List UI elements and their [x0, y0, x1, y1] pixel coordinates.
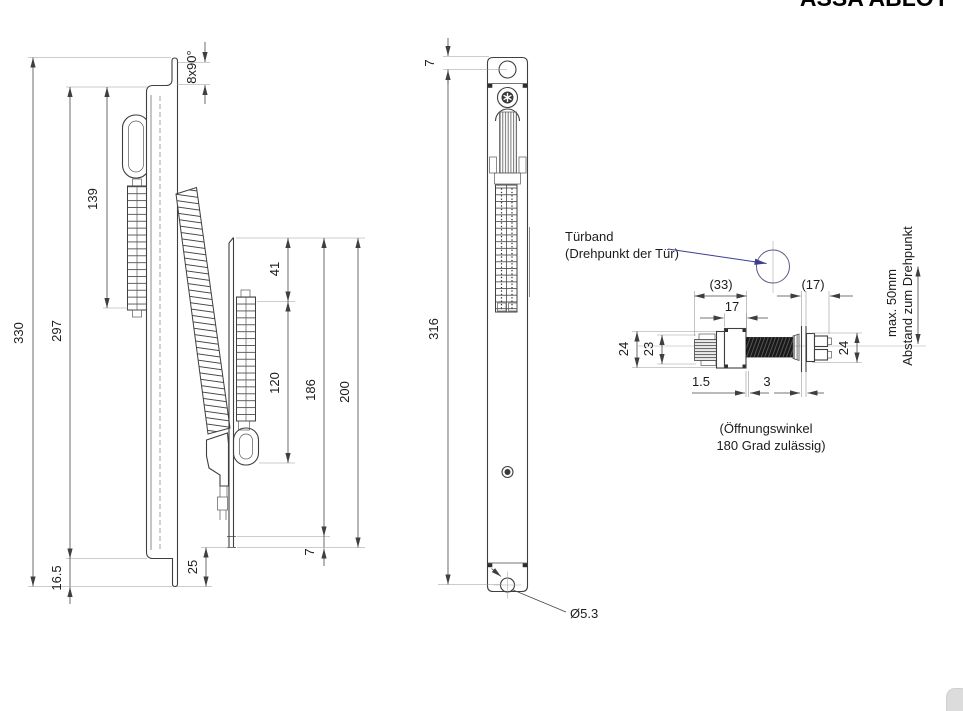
dim-socket-height: 24	[836, 341, 851, 355]
dim-flange-step: 1.5	[692, 374, 710, 389]
brand-logo-text: ASSA ABLOY	[800, 0, 949, 10]
pivot-distance-note-line1: max. 50mm	[884, 269, 899, 337]
terminal-block-door	[237, 290, 256, 430]
dim-door-inner: 186	[303, 379, 318, 401]
dim-socket-total: (17)	[801, 277, 824, 292]
dim-door-total: 200	[337, 381, 352, 403]
dim-plate-height: 297	[49, 320, 64, 342]
wall-plate-profile	[147, 58, 178, 587]
dim-plug-total: (33)	[709, 277, 732, 292]
door-hook	[234, 428, 259, 465]
corrugated-cable	[176, 188, 230, 435]
technical-drawing-page: ASSA ABLOY	[0, 0, 963, 711]
dim-hole-diameter: Ø5.3	[570, 606, 598, 621]
dim-overall-height: 330	[11, 322, 26, 344]
hinge-label-line1: Türband	[565, 229, 613, 244]
dim-plug-height-outer: 24	[616, 342, 631, 356]
cable-gland-housing	[207, 433, 229, 520]
dim-tab-offset: 25	[185, 560, 200, 574]
door-leaf-section	[802, 291, 807, 397]
dim-door-terminal: 120	[267, 372, 282, 394]
side-view-dimensions: 330 297 139 16.5 8x90° 41 120 186	[11, 42, 358, 604]
socket-fitting	[807, 334, 832, 362]
dim-terminal-height: 139	[85, 188, 100, 210]
dim-hole-span: 316	[426, 318, 441, 340]
dim-plug-height-inner: 23	[641, 342, 656, 356]
door-plate-profile	[227, 238, 236, 548]
dim-top-bend: 8x90°	[184, 50, 199, 83]
cable-loop-hook	[123, 115, 150, 178]
dim-plug-body: 17	[725, 299, 739, 314]
brand-logo: ASSA ABLOY	[775, 0, 951, 10]
terminal-block-wall	[128, 179, 147, 317]
opening-angle-note-line2: 180 Grad zulässig)	[716, 438, 825, 453]
drawing-canvas: 330 297 139 16.5 8x90° 41 120 186	[0, 0, 963, 711]
opening-angle-note-line1: (Öffnungswinkel	[720, 421, 813, 436]
corrugated-tube	[747, 334, 800, 361]
hinge-label-line2: (Drehpunkt der Tür)	[565, 246, 679, 261]
side-view-assembly: 330 297 139 16.5 8x90° 41 120 186	[11, 42, 365, 604]
dim-wall-gap: 3	[763, 374, 770, 389]
hinge-leader-line	[668, 249, 767, 264]
connector-detail: Türband (Drehpunkt der Tür)	[565, 226, 926, 453]
plug-assembly	[695, 329, 747, 369]
terminal-block-front	[496, 185, 518, 312]
dim-door-foot: 7	[302, 548, 317, 555]
pivot-distance-note-line2: Abstand zum Drehpunkt	[900, 226, 915, 366]
dim-bottom-foot: 16.5	[49, 565, 64, 590]
corner-widget	[946, 688, 963, 711]
dim-door-top-gap: 41	[267, 262, 282, 276]
front-view: 7 316 Ø5.3	[422, 38, 598, 621]
dim-hole-top-offset: 7	[422, 59, 437, 66]
